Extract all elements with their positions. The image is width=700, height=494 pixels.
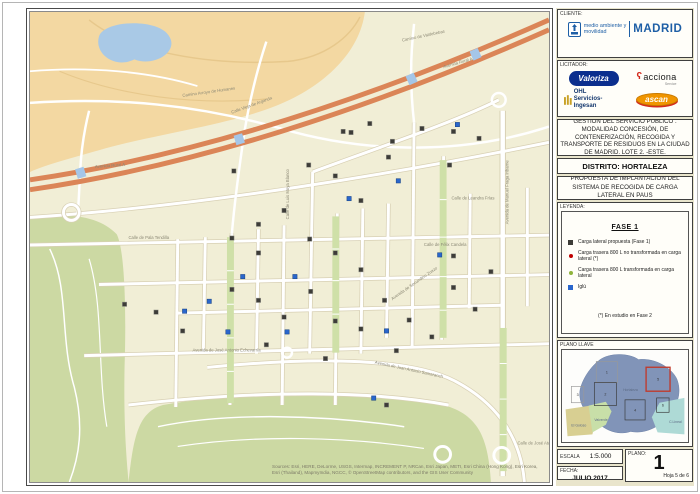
- keymap-sheet-number: 5: [657, 378, 659, 382]
- carga-lateral-marker: [154, 310, 158, 314]
- street-label: Calle de Leandra Frías: [452, 196, 495, 201]
- keymap-sheet-number: 3: [577, 393, 579, 397]
- map-canvas: Camino Arroyo de HumanesCamino de Valdeb…: [29, 11, 550, 483]
- date-label: FECHA:: [558, 467, 622, 474]
- ohl-icon: [564, 95, 572, 105]
- legend-marker-dot-icon: [569, 271, 573, 275]
- plan-sheet-page: Camino Arroyo de HumanesCamino de Valdeb…: [0, 0, 700, 494]
- carga-lateral-marker: [308, 237, 312, 241]
- carga-lateral-marker: [420, 126, 424, 130]
- iglu-marker: [384, 329, 388, 333]
- carga-lateral-marker: [451, 285, 455, 289]
- iglu-marker: [241, 274, 245, 278]
- keymap-sheet-number: 6: [662, 404, 664, 408]
- carga-lateral-marker: [309, 289, 313, 293]
- keymap-inner-frame: 123456 Hortaleza El Goloso Valverde C.Li…: [561, 349, 689, 443]
- carga-lateral-marker: [430, 335, 434, 339]
- medio-ambiente-logo: medio ambiente y movilidad: [584, 23, 627, 35]
- proposal-box: PROPUESTA DE IMPLANTACIÓN DEL SISTEMA DE…: [557, 176, 693, 200]
- cliente-box: CLIENTE: medio ambiente y movilidad MADR…: [557, 9, 693, 58]
- legend-item-text: Carga lateral propuesta (Fase 1): [578, 239, 650, 245]
- iglu-marker: [438, 253, 442, 257]
- carga-lateral-marker: [256, 251, 260, 255]
- keymap-box: PLANO LLAVE 123456 Hortaleza El Goloso V…: [557, 340, 693, 447]
- carga-lateral-marker: [282, 315, 286, 319]
- carga-lateral-marker: [359, 198, 363, 202]
- carga-lateral-marker: [232, 169, 236, 173]
- iglu-marker: [347, 196, 351, 200]
- carga-lateral-marker: [489, 270, 493, 274]
- keymap-label: PLANO LLAVE: [558, 341, 692, 348]
- carga-lateral-marker: [230, 287, 234, 291]
- project-title: GESTIÓN DEL SERVICIO PÚBLICO . MODALIDAD…: [558, 119, 692, 156]
- licitador-box: LICITADOR: Valoriza ʕacciona Service OHL…: [557, 60, 693, 117]
- sheet-number: 1: [626, 452, 692, 475]
- street-label: Calle de Pala Tendilla: [128, 235, 169, 240]
- carga-lateral-marker: [341, 129, 345, 133]
- legend-box: LEYENDA: FASE 1 Carga lateral propuesta …: [557, 202, 693, 338]
- carga-lateral-marker: [333, 319, 337, 323]
- date-box: FECHA: JULIO 2017: [557, 466, 623, 480]
- carga-lateral-marker: [359, 327, 363, 331]
- district-box: DISTRITO: HORTALEZA: [557, 158, 693, 174]
- legend-item: Iglú: [568, 284, 688, 290]
- iglu-marker: [372, 396, 376, 400]
- iglu-marker: [182, 309, 186, 313]
- carga-lateral-marker: [451, 129, 455, 133]
- city-map: Camino Arroyo de HumanesCamino de Valdeb…: [30, 12, 549, 482]
- legend-item-text: Iglú: [578, 284, 586, 290]
- date-value: JULIO 2017: [558, 475, 622, 480]
- carga-lateral-marker: [230, 236, 234, 240]
- carga-lateral-marker: [359, 268, 363, 272]
- phase-title: FASE 1: [562, 224, 688, 231]
- legend-marker-dot-icon: [569, 254, 573, 258]
- carga-lateral-marker: [384, 403, 388, 407]
- carga-lateral-marker: [333, 251, 337, 255]
- keymap-neighbor-2: Valverde: [594, 418, 607, 422]
- scale-value: 1:5.000: [590, 453, 612, 460]
- ohl-logo: OHLServicios-Ingesan: [564, 89, 623, 111]
- bottom-row: ESCALA 1:5.000 FECHA: JULIO 2017 PLANO: …: [557, 449, 693, 482]
- district-title: DISTRITO: HORTALEZA: [582, 162, 667, 171]
- carga-lateral-marker: [180, 329, 184, 333]
- acciona-swoosh-icon: ʕ: [637, 71, 643, 82]
- project-title-box: GESTIÓN DEL SERVICIO PÚBLICO . MODALIDAD…: [557, 119, 693, 156]
- carga-lateral-marker: [264, 343, 268, 347]
- legend-item-text: Carga trasera 800 L transformada en carg…: [578, 267, 688, 279]
- iglu-marker: [285, 330, 289, 334]
- carga-lateral-marker: [368, 121, 372, 125]
- map-attribution: Sources: Esri, HERE, DeLorme, USGS, Inte…: [272, 464, 540, 476]
- carga-lateral-marker: [477, 136, 481, 140]
- carga-lateral-marker: [256, 222, 260, 226]
- carga-lateral-marker: [382, 298, 386, 302]
- acciona-logo: ʕacciona Service: [637, 71, 677, 86]
- map-frame: Camino Arroyo de HumanesCamino de Valdeb…: [26, 8, 553, 486]
- legend-item-text: Carga trasera 800 L no transformada en c…: [578, 250, 688, 262]
- carga-lateral-marker: [407, 318, 411, 322]
- legend-footnote: (*) En estudio en Fase 2: [562, 313, 688, 319]
- keymap-neighbor-3: C.Lineal: [669, 420, 682, 424]
- carga-lateral-marker: [386, 155, 390, 159]
- iglu-marker: [293, 274, 297, 278]
- keymap-neighbor-1: El Goloso: [571, 424, 586, 428]
- legend-items: Carga lateral propuesta (Fase 1)Carga tr…: [568, 239, 688, 290]
- sheet-number-box: PLANO: 1 Hoja 5 de 6: [625, 449, 693, 482]
- carga-lateral-marker: [307, 163, 311, 167]
- licitador-label: LICITADOR:: [558, 61, 692, 68]
- street-label: Avenida de José Antonio Echevarría: [192, 348, 261, 353]
- legend-item: Carga trasera 800 L no transformada en c…: [568, 250, 688, 262]
- carga-lateral-marker: [333, 174, 337, 178]
- carga-lateral-marker: [122, 302, 126, 306]
- legend-label: LEYENDA:: [558, 203, 692, 210]
- ascan-logo: ascan: [636, 93, 678, 106]
- madrid-wordmark: MADRID: [633, 23, 682, 35]
- legend-marker-square-icon: [568, 240, 573, 245]
- madrid-crest-icon: [568, 22, 581, 37]
- carga-lateral-marker: [349, 130, 353, 134]
- carga-lateral-marker: [390, 139, 394, 143]
- cliente-label: CLIENTE:: [558, 10, 692, 17]
- carga-lateral-marker: [256, 298, 260, 302]
- carga-lateral-marker: [473, 307, 477, 311]
- iglu-marker: [207, 299, 211, 303]
- scale-label: ESCALA: [558, 454, 580, 460]
- street-label: Calle de Félix Candela: [424, 242, 467, 247]
- street-label: Calle de José Atarés: [517, 440, 549, 445]
- iglu-marker: [455, 122, 459, 126]
- carga-lateral-marker: [323, 356, 327, 360]
- legend-marker-square-icon: [568, 285, 573, 290]
- title-block-panel: CLIENTE: medio ambiente y movilidad MADR…: [556, 8, 694, 486]
- pond: [98, 23, 171, 62]
- sheet-count: Hoja 5 de 6: [663, 473, 689, 479]
- street-label: Avenida de Manuel Fraga Iribarne: [505, 160, 510, 225]
- carga-lateral-marker: [451, 254, 455, 258]
- legend-inner-frame: FASE 1 Carga lateral propuesta (Fase 1)C…: [561, 211, 689, 334]
- valoriza-logo: Valoriza: [569, 71, 619, 86]
- logo-divider: [629, 21, 630, 37]
- keymap-svg: 123456 Hortaleza El Goloso Valverde C.Li…: [562, 350, 688, 442]
- keymap-sheet-number: 4: [634, 408, 636, 412]
- keymap-sheet-number: 1: [606, 370, 608, 374]
- carga-lateral-marker: [394, 349, 398, 353]
- scale-box: ESCALA 1:5.000: [557, 449, 623, 464]
- iglu-marker: [226, 330, 230, 334]
- legend-item: Carga trasera 800 L transformada en carg…: [568, 267, 688, 279]
- carga-lateral-marker: [282, 208, 286, 212]
- proposal-title: PROPUESTA DE IMPLANTACIÓN DEL SISTEMA DE…: [558, 176, 692, 200]
- keymap-sheet-number: 2: [604, 393, 606, 397]
- keymap-district-name: Hortaleza: [623, 388, 638, 392]
- iglu-marker: [396, 179, 400, 183]
- legend-item: Carga lateral propuesta (Fase 1): [568, 239, 688, 245]
- carga-lateral-marker: [447, 163, 451, 167]
